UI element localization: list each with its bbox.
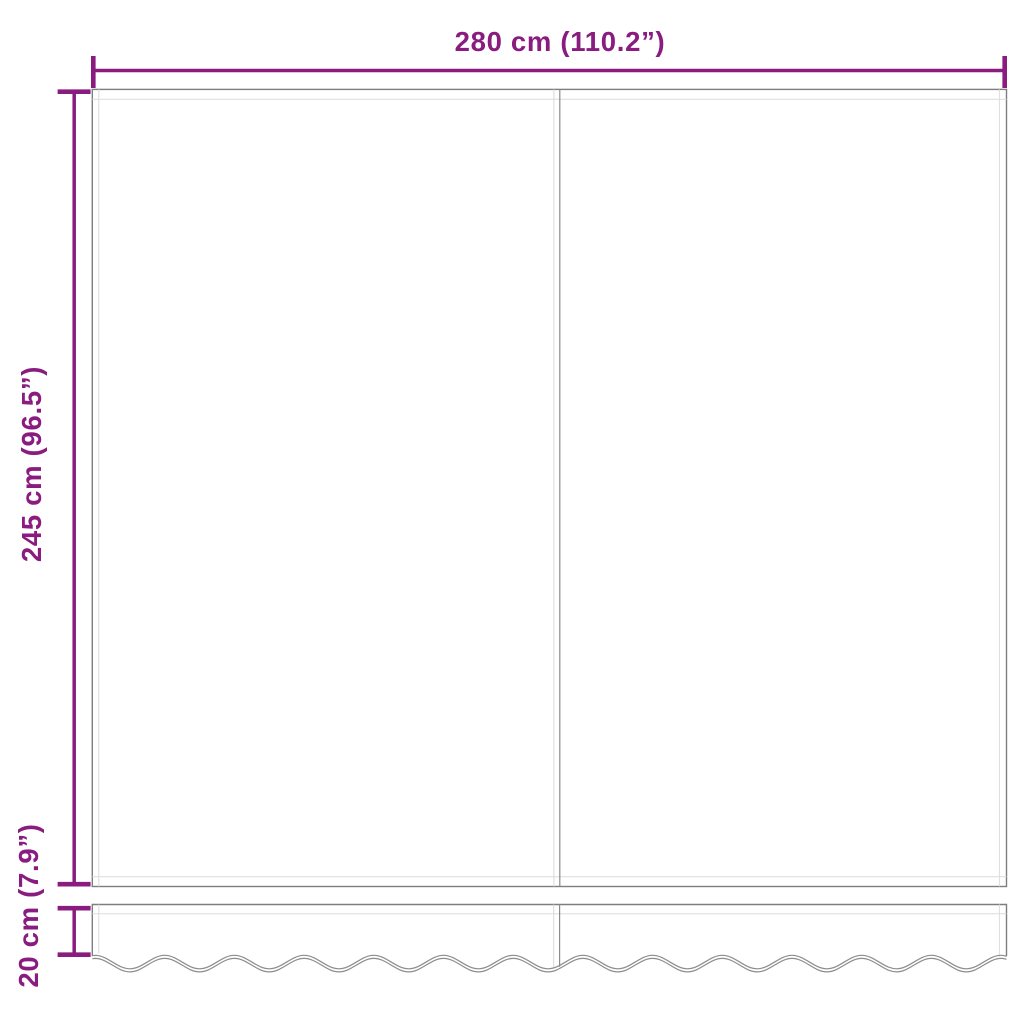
svg-text:280 cm (110.2”): 280 cm (110.2”) [455, 26, 666, 57]
svg-text:20 cm (7.9”): 20 cm (7.9”) [13, 823, 44, 987]
svg-text:245 cm (96.5”): 245 cm (96.5”) [16, 366, 47, 562]
